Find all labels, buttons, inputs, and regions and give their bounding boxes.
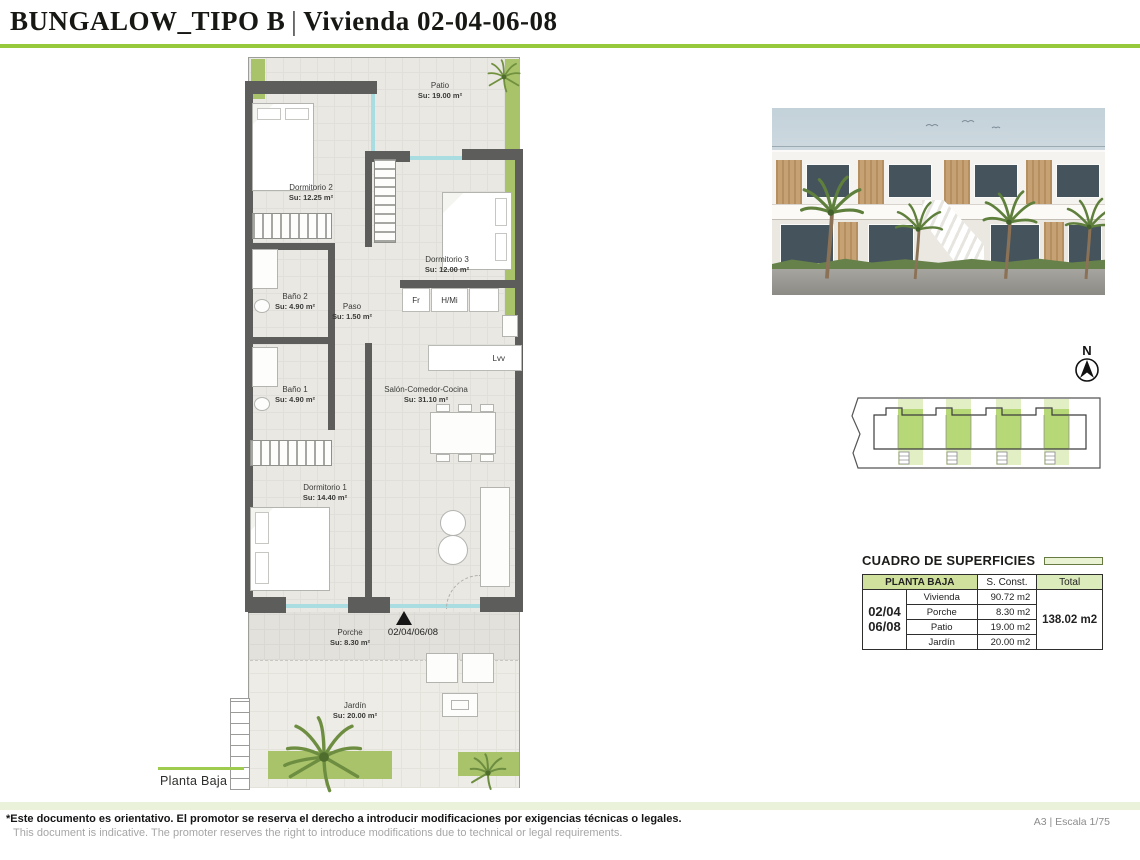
chair [436, 454, 450, 462]
value-cell: 8.30 m2 [977, 605, 1037, 620]
total-cell: 138.02 m2 [1037, 590, 1103, 650]
exterior-render-photo [772, 108, 1105, 295]
wall-segment [245, 81, 377, 94]
garden-table-top [451, 700, 469, 710]
window [371, 94, 375, 151]
pillow [255, 512, 269, 544]
window [286, 604, 348, 608]
pillow [255, 552, 269, 584]
title-main: BUNGALOW_TIPO B [10, 6, 285, 36]
wall-segment [250, 337, 335, 344]
room-label-jardin: JardínSu: 20.00 m² [295, 701, 415, 721]
wardrobe [374, 159, 396, 243]
wardrobe [252, 213, 332, 239]
dishwasher-label: Lvv [493, 354, 505, 363]
room-label-salon: Salón-Comedor-CocinaSu: 31.10 m² [366, 385, 486, 405]
room-label-patio: PatioSu: 19.00 m² [380, 81, 500, 101]
palm-tree-icon [794, 167, 870, 281]
page-title: BUNGALOW_TIPO B|Vivienda 02-04-06-08 [10, 6, 557, 37]
sheet-info: A3 | Escala 1/75 [985, 816, 1110, 828]
floor-plan: Fr H/Mi Lvv 02/04/06/08 PatioSu: 19.0 [230, 55, 532, 803]
concept-cell: Jardín [906, 635, 977, 650]
value-cell: 20.00 m2 [977, 635, 1037, 650]
palm-tree-icon [1060, 191, 1105, 281]
table-row: 02/04 06/08 Vivienda 90.72 m2 138.02 m2 [863, 590, 1103, 605]
surfaces-panel: CUADRO DE SUPERFICIES PLANTA BAJA S. Con… [862, 553, 1103, 650]
pillow [257, 108, 281, 120]
side-table [438, 535, 468, 565]
chair [458, 454, 472, 462]
north-label: N [1072, 344, 1102, 357]
pillow [495, 198, 507, 226]
chair [436, 404, 450, 412]
sun-lounger [426, 653, 458, 683]
room-label-dormitorio-3: Dormitorio 3Su: 12.00 m² [387, 255, 507, 275]
concept-cell: Patio [906, 620, 977, 635]
surfaces-title: CUADRO DE SUPERFICIES [862, 553, 1035, 568]
room-label-paso: PasoSu: 1.50 m² [292, 302, 412, 322]
wall-segment [480, 597, 523, 612]
sun-lounger [462, 653, 494, 683]
wall-segment [248, 597, 286, 613]
chair [458, 404, 472, 412]
disclaimer-en: This document is indicative. The promote… [13, 827, 622, 839]
wall-segment [365, 343, 372, 612]
surfaces-accent-bar [1044, 557, 1103, 565]
wall-segment [462, 149, 515, 160]
exterior-stairs [230, 698, 250, 790]
room-label-dormitorio-2: Dormitorio 2Su: 12.25 m² [251, 183, 371, 203]
col-header-total: Total [1037, 575, 1103, 590]
palm-tree-icon [890, 195, 948, 281]
side-table [440, 510, 466, 536]
room-label-dormitorio-1: Dormitorio 1Su: 14.40 m² [265, 483, 385, 503]
shower [252, 347, 278, 387]
concept-cell: Vivienda [906, 590, 977, 605]
sofa [480, 487, 510, 587]
wall-segment [515, 149, 523, 612]
sink [502, 315, 518, 337]
north-indicator: N [1072, 344, 1102, 388]
upper-window [888, 164, 932, 198]
footer-accent-band [0, 802, 1140, 810]
wall-segment [400, 280, 522, 288]
chair [480, 454, 494, 462]
wardrobe [250, 440, 332, 466]
garden-table [442, 693, 478, 717]
title-divider: | [285, 6, 303, 36]
unit-dividers [898, 415, 1069, 449]
disclaimer-es: *Este documento es orientativo. El promo… [6, 813, 682, 825]
col-header-planta-baja: PLANTA BAJA [863, 575, 978, 590]
room-label-porche: PorcheSu: 8.30 m² [290, 628, 410, 648]
oven-micro-cell: H/Mi [431, 288, 468, 312]
entrance-arrow-icon [396, 611, 412, 625]
roof-railing [772, 146, 1105, 147]
dining-table [430, 412, 496, 454]
floor-caption: Planta Baja [160, 774, 227, 788]
chair [480, 404, 494, 412]
palm-tree-icon [977, 183, 1043, 281]
floor-caption-rule [158, 767, 244, 770]
concept-cell: Porche [906, 605, 977, 620]
bed [250, 507, 330, 591]
wall-segment [348, 597, 390, 613]
site-plan [846, 396, 1104, 474]
col-header-sconst: S. Const. [977, 575, 1037, 590]
value-cell: 19.00 m2 [977, 620, 1037, 635]
pillow [285, 108, 309, 120]
compass-icon [1074, 357, 1100, 383]
shower [252, 249, 278, 289]
window [410, 156, 462, 160]
unit-cell: 02/04 06/08 [863, 590, 907, 650]
brochure-page: BUNGALOW_TIPO B|Vivienda 02-04-06-08 [0, 0, 1140, 860]
fridge-label: Fr [412, 296, 420, 305]
palm-tree-icon [468, 753, 508, 793]
birds [922, 118, 1012, 142]
accent-rule [0, 44, 1140, 48]
palm-tree-icon [282, 715, 366, 799]
title-sub: Vivienda 02-04-06-08 [303, 6, 557, 36]
counter-cell [469, 288, 499, 312]
surfaces-table: PLANTA BAJA S. Const. Total 02/04 06/08 … [862, 574, 1103, 650]
bed [252, 103, 314, 191]
value-cell: 90.72 m2 [977, 590, 1037, 605]
oven-micro-label: H/Mi [441, 296, 457, 305]
kitchen-island: Lvv [428, 345, 522, 371]
room-label-bano-1: Baño 1Su: 4.90 m² [235, 385, 355, 405]
table-header-row: PLANTA BAJA S. Const. Total [863, 575, 1103, 590]
